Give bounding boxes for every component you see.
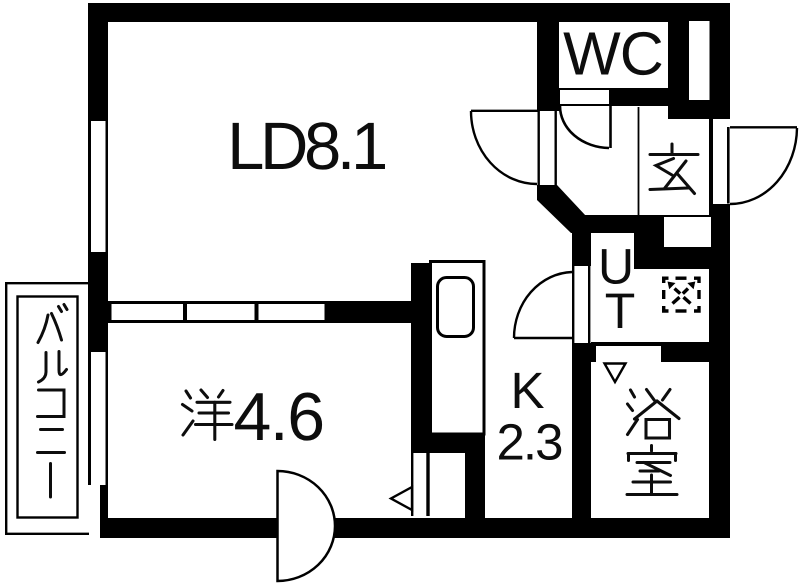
svg-text:T: T (605, 283, 636, 339)
svg-text:WC: WC (563, 20, 663, 88)
svg-text:4.6: 4.6 (233, 379, 323, 455)
svg-text:2.3: 2.3 (497, 414, 563, 471)
svg-text:LD8.1: LD8.1 (227, 109, 385, 184)
svg-text:K: K (510, 362, 544, 419)
